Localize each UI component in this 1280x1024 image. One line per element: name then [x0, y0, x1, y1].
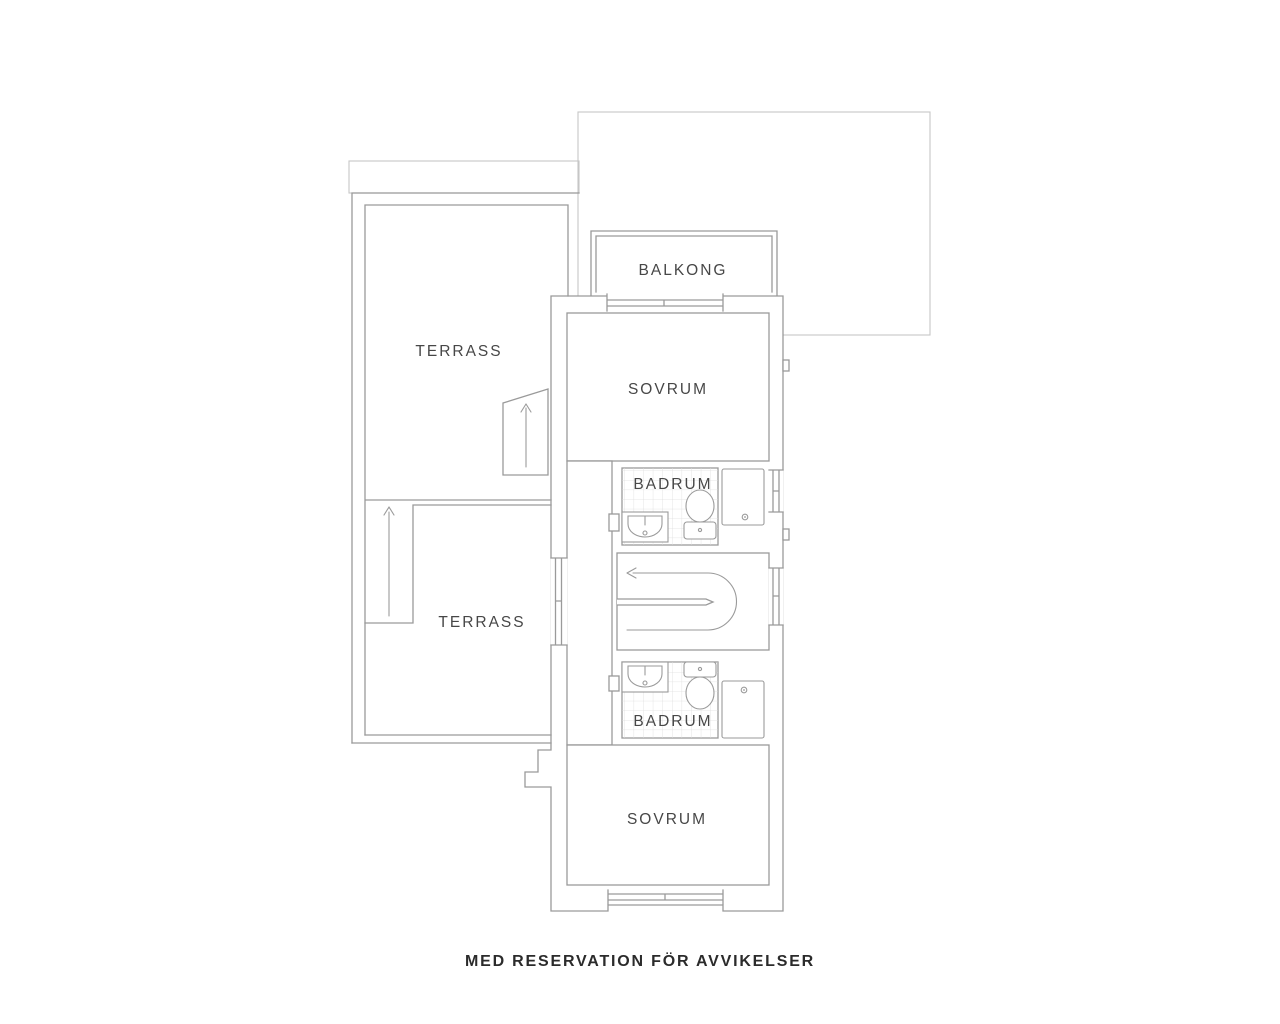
floor-plan-page: BALKONG TERRASS TERRASS SOVRUM [0, 0, 1280, 1024]
balcony-label: BALKONG [639, 262, 728, 279]
bedroom-lower-label: SOVRUM [627, 811, 707, 828]
roof-outline-strip [349, 161, 579, 193]
wall-peg [783, 529, 789, 540]
disclaimer-text: MED RESERVATION FÖR AVVIKELSER [465, 951, 815, 970]
bedroom-upper-label: SOVRUM [628, 381, 708, 398]
window [551, 558, 568, 645]
terrace-upper: TERRASS [352, 193, 579, 743]
balcony: BALKONG [591, 231, 777, 297]
terrace-upper-label: TERRASS [415, 343, 502, 360]
shaft [609, 514, 619, 531]
bathroom-upper-label: BADRUM [633, 476, 712, 493]
bedroom-lower: SOVRUM [567, 745, 769, 885]
toilet-icon [684, 490, 716, 539]
balcony-door [607, 294, 723, 311]
toilet-icon [684, 662, 716, 709]
terrace-lower-label: TERRASS [438, 614, 525, 631]
stair-landing-divider [617, 599, 713, 605]
sink-icon [622, 662, 668, 692]
shower-icon [722, 681, 764, 738]
shower-icon [722, 469, 764, 525]
wall-peg [783, 360, 789, 371]
corridor [567, 461, 612, 745]
stair-hall [617, 553, 769, 650]
window [769, 568, 784, 625]
shaft [609, 676, 619, 691]
floor-plan-drawing: BALKONG TERRASS TERRASS SOVRUM [0, 0, 1280, 1024]
stairs-up-arrow-icon [384, 507, 394, 616]
sink-icon [622, 512, 668, 542]
bedroom-upper: SOVRUM [567, 313, 769, 461]
window [769, 470, 784, 512]
corridor-walls [567, 461, 612, 745]
terrace-lower: TERRASS [352, 505, 551, 743]
window [608, 890, 723, 904]
bathroom-lower-label: BADRUM [633, 713, 712, 730]
